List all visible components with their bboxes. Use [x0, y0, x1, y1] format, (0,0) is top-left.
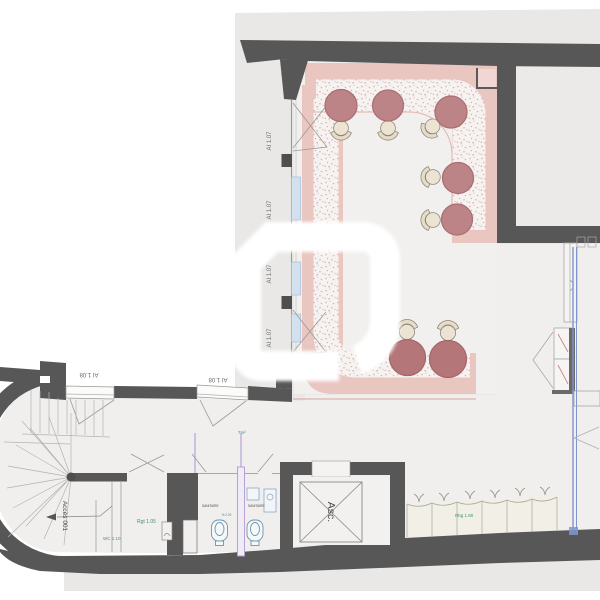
svg-text:H:2.20: H:2.20 [222, 513, 232, 517]
svg-text:Rbg 1.80: Rbg 1.80 [455, 513, 474, 518]
svg-text:Accès 001: Accès 001 [61, 501, 68, 532]
svg-text:7m²: 7m² [238, 430, 246, 435]
svg-text:AI 1.08: AI 1.08 [79, 371, 99, 377]
svg-text:Asc.: Asc. [325, 502, 337, 522]
svg-text:AI 1.07: AI 1.07 [267, 264, 273, 284]
svg-text:Rgt 1.05: Rgt 1.05 [137, 519, 156, 525]
svg-text:AI 1.07: AI 1.07 [267, 200, 273, 220]
svg-text:AI 1.08: AI 1.08 [208, 376, 228, 382]
svg-text:WC 1.10: WC 1.10 [103, 536, 121, 541]
svg-text:AI 1.07: AI 1.07 [267, 131, 273, 151]
svg-text:SANITAIRE: SANITAIRE [202, 504, 219, 508]
svg-text:AI 1.07: AI 1.07 [267, 328, 273, 348]
svg-text:SANITAIRE: SANITAIRE [248, 504, 265, 508]
